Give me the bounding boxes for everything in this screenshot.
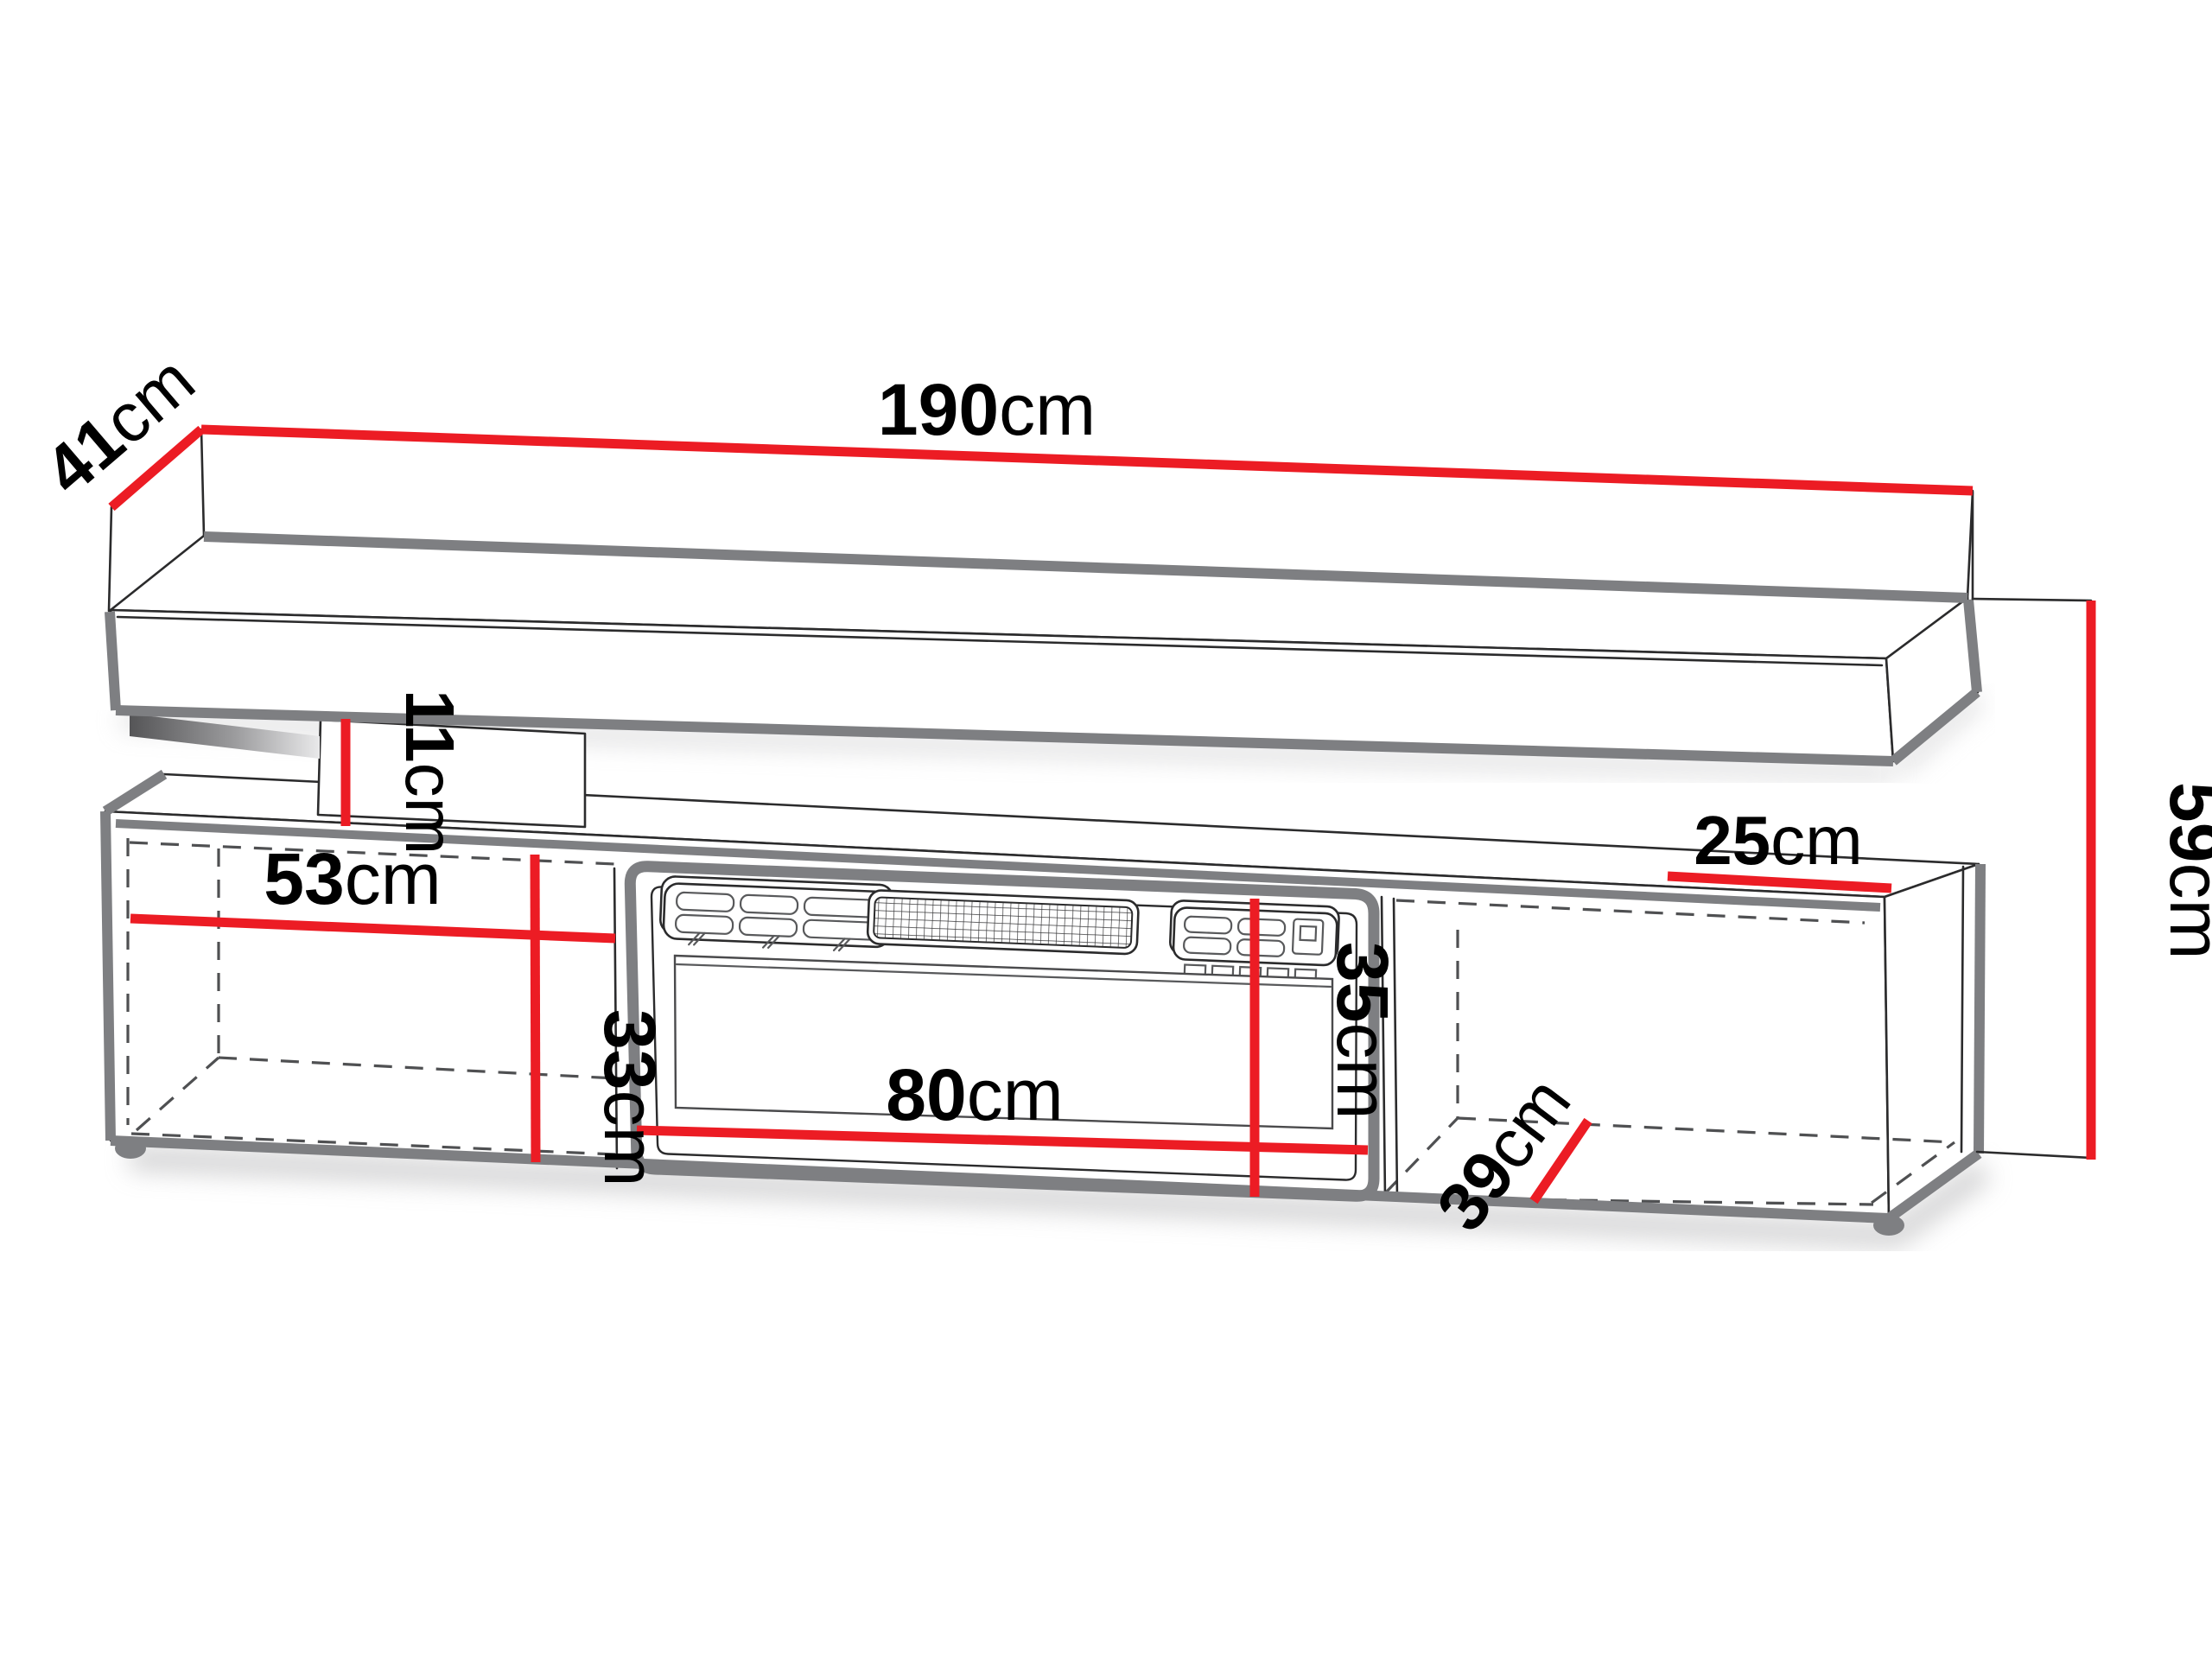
vent-mesh-center-icon <box>868 890 1139 954</box>
cabinet-foot-right <box>1873 1215 1904 1236</box>
dimension-diagram: 190cm 41cm 59cm 11cm 53cm 33cm 80cm 35cm… <box>0 0 2212 1659</box>
dim-label-fireplace-height: 35cm <box>1322 942 1403 1119</box>
dim-line-left-height <box>535 855 536 1162</box>
dim-label-fireplace-width: 80cm <box>886 1054 1063 1135</box>
dim-label-gap-height: 11cm <box>391 690 468 855</box>
dim-label-shelf-width: 190cm <box>878 369 1096 450</box>
dim-label-right-top-width: 25cm <box>1694 802 1863 879</box>
dim-label-overall-height: 59cm <box>2155 782 2212 959</box>
dim-label-left-height: 33cm <box>589 1009 671 1186</box>
dim-label-left-width: 53cm <box>264 838 441 919</box>
cabinet-foot-left <box>115 1138 146 1159</box>
dimension-diagram-page: 190cm 41cm 59cm 11cm 53cm 33cm 80cm 35cm… <box>0 0 2212 1659</box>
